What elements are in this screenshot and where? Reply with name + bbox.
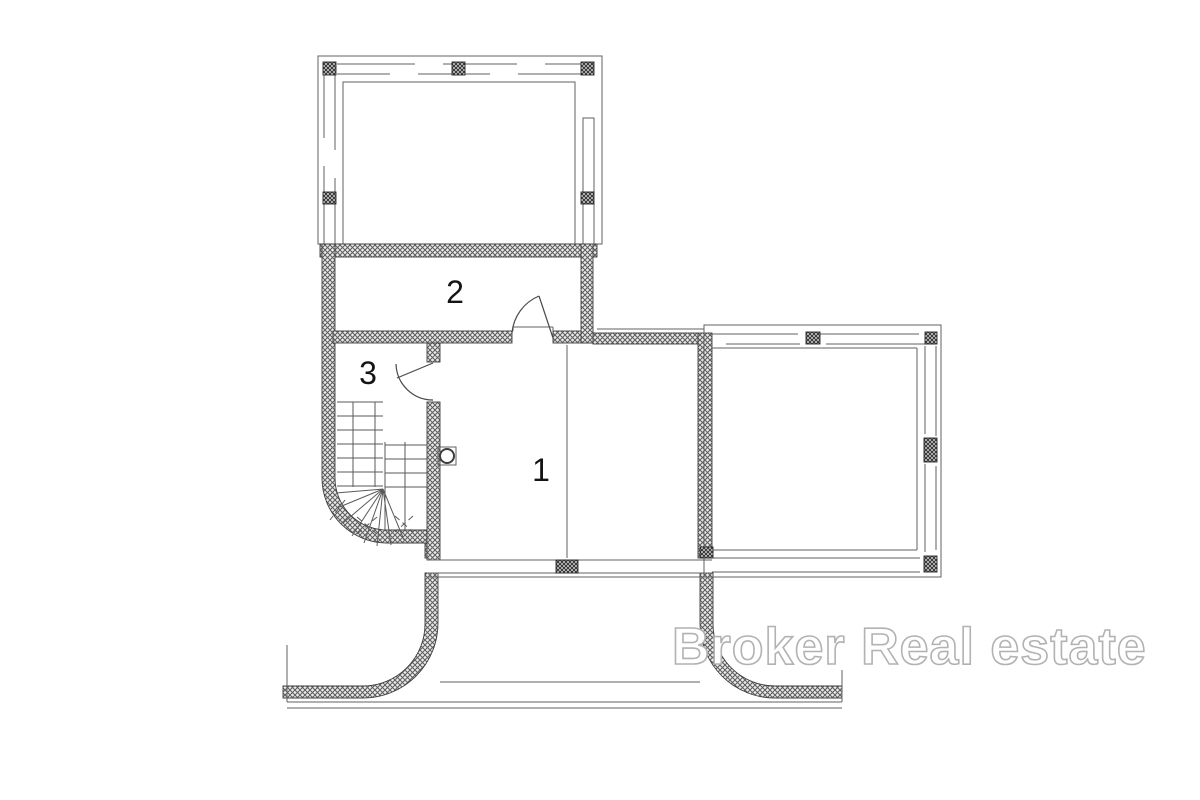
terrace-column — [700, 547, 713, 558]
right-terrace-outline — [704, 325, 941, 577]
wall-room3-right — [427, 402, 440, 560]
right-terrace-inner-room — [712, 348, 917, 550]
lower-terrace-front-edge — [287, 702, 842, 708]
terrace-column — [323, 62, 336, 75]
terrace-column — [925, 332, 937, 344]
terrace-column — [581, 192, 594, 204]
stair-treads-right — [385, 442, 427, 530]
room-label-3: 3 — [359, 355, 377, 391]
door-leaf — [539, 296, 553, 338]
door-threshold — [513, 327, 553, 331]
terrace-column — [924, 556, 937, 572]
terrace-column — [452, 62, 465, 75]
terrace-column — [323, 192, 336, 204]
terrace-column — [581, 62, 594, 75]
upper-terrace — [318, 56, 602, 244]
wall-room2-right — [581, 244, 593, 343]
wall-room3-right-stub — [427, 343, 440, 362]
room-2: 2 — [446, 274, 553, 338]
watermark-text: Broker Real estate — [672, 618, 1147, 676]
upper-terrace-planter — [583, 118, 594, 192]
right-terrace — [700, 325, 941, 577]
upper-terrace-outline — [318, 56, 602, 244]
terrace-column — [924, 438, 937, 462]
door-leaf — [397, 363, 433, 378]
wall-lower-left-curved — [283, 573, 438, 698]
floor-plan-canvas: 2 3 1 — [0, 0, 1200, 800]
door-swing-arc — [396, 364, 433, 400]
wall-top — [320, 244, 597, 257]
door-room-3 — [396, 363, 433, 400]
right-terrace-railing-top — [712, 334, 936, 344]
round-fixture — [438, 447, 456, 465]
upper-terrace-railing-left — [324, 75, 335, 244]
room-label-1: 1 — [532, 452, 550, 488]
right-terrace-railing-bottom — [712, 558, 920, 572]
upper-terrace-inner-room — [343, 82, 575, 244]
room-1: 1 — [427, 345, 712, 577]
wall-right — [698, 333, 712, 558]
upper-terrace-railing-right — [583, 204, 594, 244]
floor-plan-drawing: 2 3 1 — [0, 0, 1200, 800]
wall-room1-top — [593, 333, 698, 344]
door-room-2 — [512, 296, 553, 338]
fixture-circle-icon — [440, 449, 454, 463]
wall-room2-bottom-left — [333, 331, 512, 343]
stair-treads-left — [337, 402, 383, 486]
room-label-2: 2 — [446, 274, 464, 310]
terrace-column — [806, 332, 820, 344]
glazing-column — [556, 560, 578, 573]
